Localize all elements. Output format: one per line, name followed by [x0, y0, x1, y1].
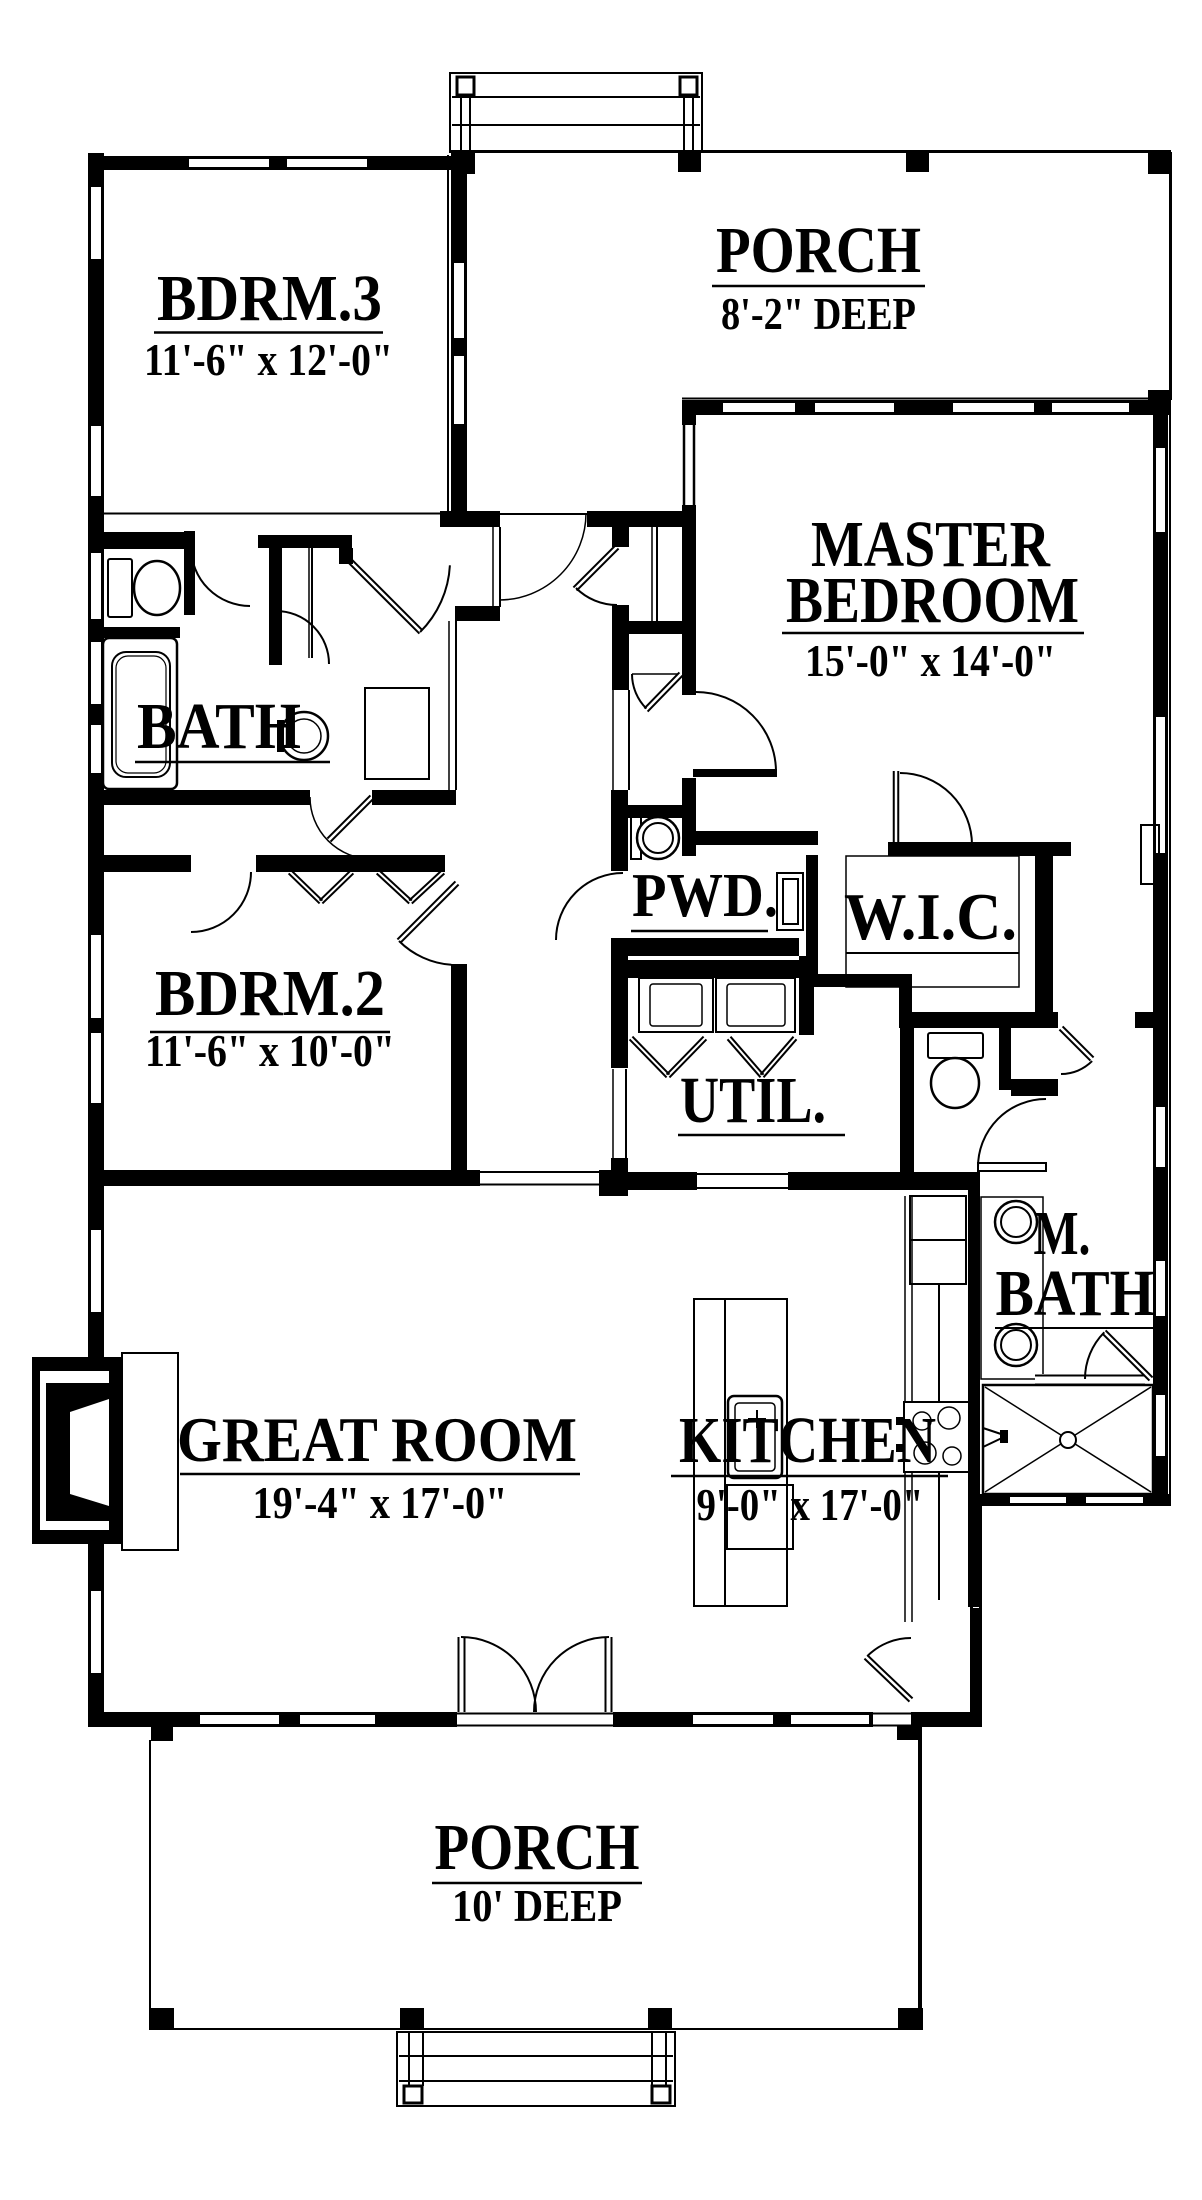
- svg-text:10' DEEP: 10' DEEP: [452, 1880, 622, 1931]
- svg-text:11'-6" x 12'-0": 11'-6" x 12'-0": [144, 334, 393, 385]
- svg-text:BEDROOM: BEDROOM: [786, 564, 1079, 637]
- svg-text:PWD.: PWD.: [632, 862, 778, 930]
- svg-text:KITCHEN: KITCHEN: [679, 1404, 936, 1477]
- svg-text:19'-4" x 17'-0": 19'-4" x 17'-0": [253, 1477, 508, 1528]
- svg-text:GREAT ROOM: GREAT ROOM: [177, 1405, 577, 1475]
- svg-text:PORCH: PORCH: [716, 214, 921, 287]
- svg-text:BDRM.2: BDRM.2: [155, 957, 385, 1030]
- svg-text:BDRM.3: BDRM.3: [157, 262, 382, 335]
- svg-text:BATH: BATH: [137, 690, 301, 763]
- svg-text:PORCH: PORCH: [435, 1811, 640, 1884]
- svg-text:9'-0" x 17'-0": 9'-0" x 17'-0": [697, 1479, 924, 1530]
- svg-text:15'-0" x 14'-0": 15'-0" x 14'-0": [805, 635, 1056, 686]
- svg-text:BATH: BATH: [996, 1257, 1155, 1330]
- svg-text:UTIL.: UTIL.: [680, 1064, 826, 1137]
- svg-text:8'-2" DEEP: 8'-2" DEEP: [721, 288, 916, 339]
- svg-text:11'-6" x 10'-0": 11'-6" x 10'-0": [145, 1025, 395, 1076]
- svg-text:W.I.C.: W.I.C.: [844, 880, 1017, 954]
